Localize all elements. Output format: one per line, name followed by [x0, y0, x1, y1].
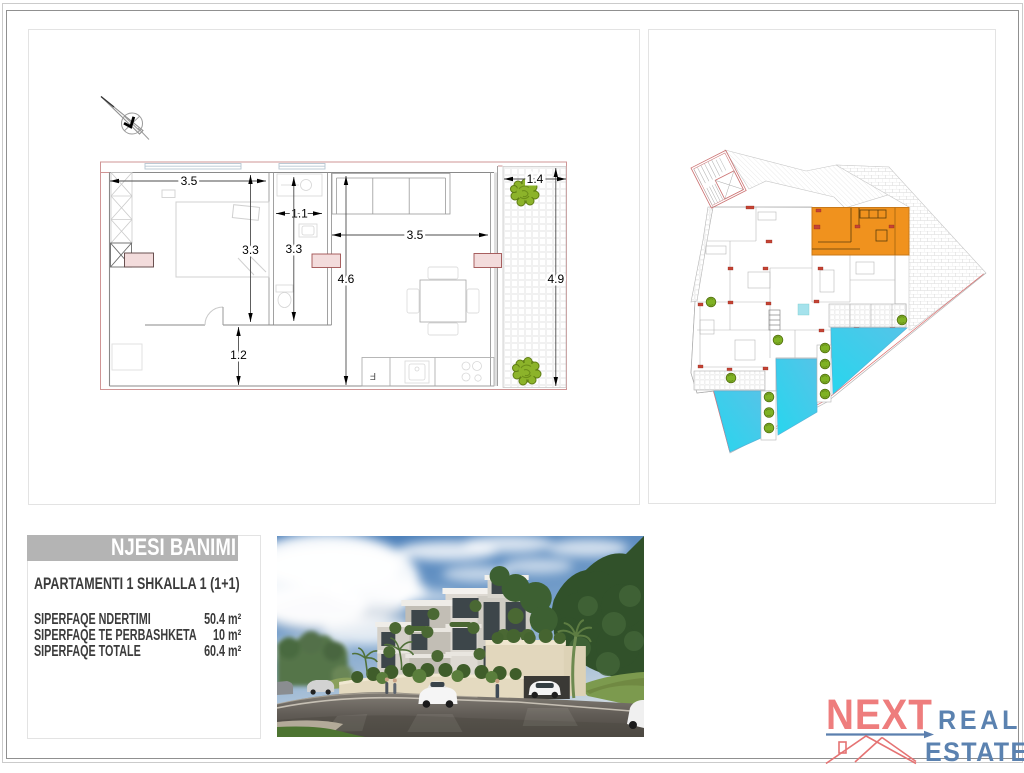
svg-text:REAL: REAL — [938, 704, 1021, 735]
svg-text:1.2: 1.2 — [230, 348, 247, 362]
svg-text:4.9: 4.9 — [547, 272, 564, 286]
svg-text:3.5: 3.5 — [181, 174, 198, 188]
svg-text:3.5: 3.5 — [407, 228, 424, 242]
svg-text:F: F — [370, 370, 376, 381]
svg-text:NEXT: NEXT — [826, 692, 933, 738]
svg-text:3.3: 3.3 — [285, 242, 302, 256]
svg-text:4.6: 4.6 — [338, 272, 355, 286]
svg-text:ESTATE: ESTATE — [925, 736, 1024, 767]
svg-text:1.4: 1.4 — [527, 172, 544, 186]
svg-text:3.3: 3.3 — [242, 243, 259, 257]
